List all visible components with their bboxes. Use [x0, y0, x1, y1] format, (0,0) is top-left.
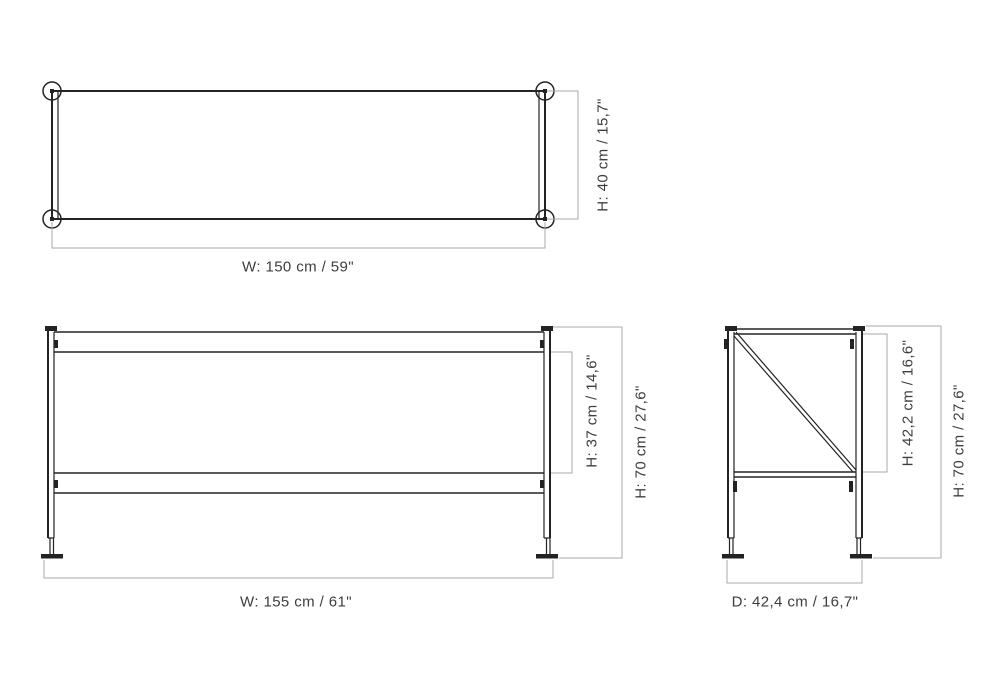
top-depth-label: H: 40 cm / 15,7" [595, 98, 612, 211]
front-width-dimension-bracket [44, 560, 553, 578]
side-depth-dimension-bracket [727, 560, 862, 583]
side-frame-height-label: H: 42,2 cm / 16,6" [900, 340, 917, 467]
corner-joint-dot [543, 89, 547, 93]
front-shelf-clearance-label: H: 37 cm / 14,6" [584, 354, 601, 467]
front-width-label: W: 155 cm / 61" [240, 594, 352, 611]
front-total-height-label: H: 70 cm / 27,6" [633, 385, 650, 498]
rail-hook-bolt [724, 339, 728, 349]
shelf-bracket-bolt [540, 340, 544, 348]
side-posts-inner [734, 332, 856, 538]
corner-joint-dot [50, 217, 54, 221]
front-posts-outer [48, 331, 550, 538]
front-view [41, 326, 622, 578]
side-total-height-label: H: 70 cm / 27,6" [951, 384, 968, 497]
shelf-bracket-bolt [54, 480, 58, 488]
rail-hook-bolt [849, 481, 853, 492]
corner-joint-dot [543, 217, 547, 221]
diagonal-cross-brace [734, 332, 856, 472]
corner-joint-dot [50, 89, 54, 93]
front-clearance-dimension-bracket [551, 352, 572, 473]
front-foot-stems [48, 538, 550, 554]
tabletop-outline [52, 91, 545, 219]
top-view [43, 82, 578, 248]
foot-plate [41, 554, 63, 559]
post-cap [45, 326, 57, 331]
front-shelf-rails [54, 332, 544, 493]
side-depth-label: D: 42,4 cm / 16,7" [732, 594, 859, 611]
top-depth-dimension-bracket [547, 91, 578, 219]
shelf-bracket-bolt [540, 480, 544, 488]
side-posts-outer [728, 331, 862, 538]
side-foot-stems [728, 538, 862, 554]
foot-plate [536, 554, 558, 559]
shelf-bracket-bolt [54, 340, 58, 348]
post-cap [541, 326, 553, 331]
top-width-dimension-bracket [52, 222, 545, 248]
foot-plate [722, 554, 744, 559]
foot-plate [850, 554, 872, 559]
rail-hook-bolt [850, 339, 854, 349]
top-width-label: W: 150 cm / 59" [242, 259, 354, 276]
side-frame-dimension-bracket [863, 334, 887, 472]
rail-hook-bolt [733, 481, 737, 492]
technical-drawing-canvas: H: 40 cm / 15,7" W: 150 cm / 59" H: 37 c… [0, 0, 1000, 700]
front-posts-inner [54, 332, 544, 538]
side-rail-inner-lines [58, 92, 539, 218]
